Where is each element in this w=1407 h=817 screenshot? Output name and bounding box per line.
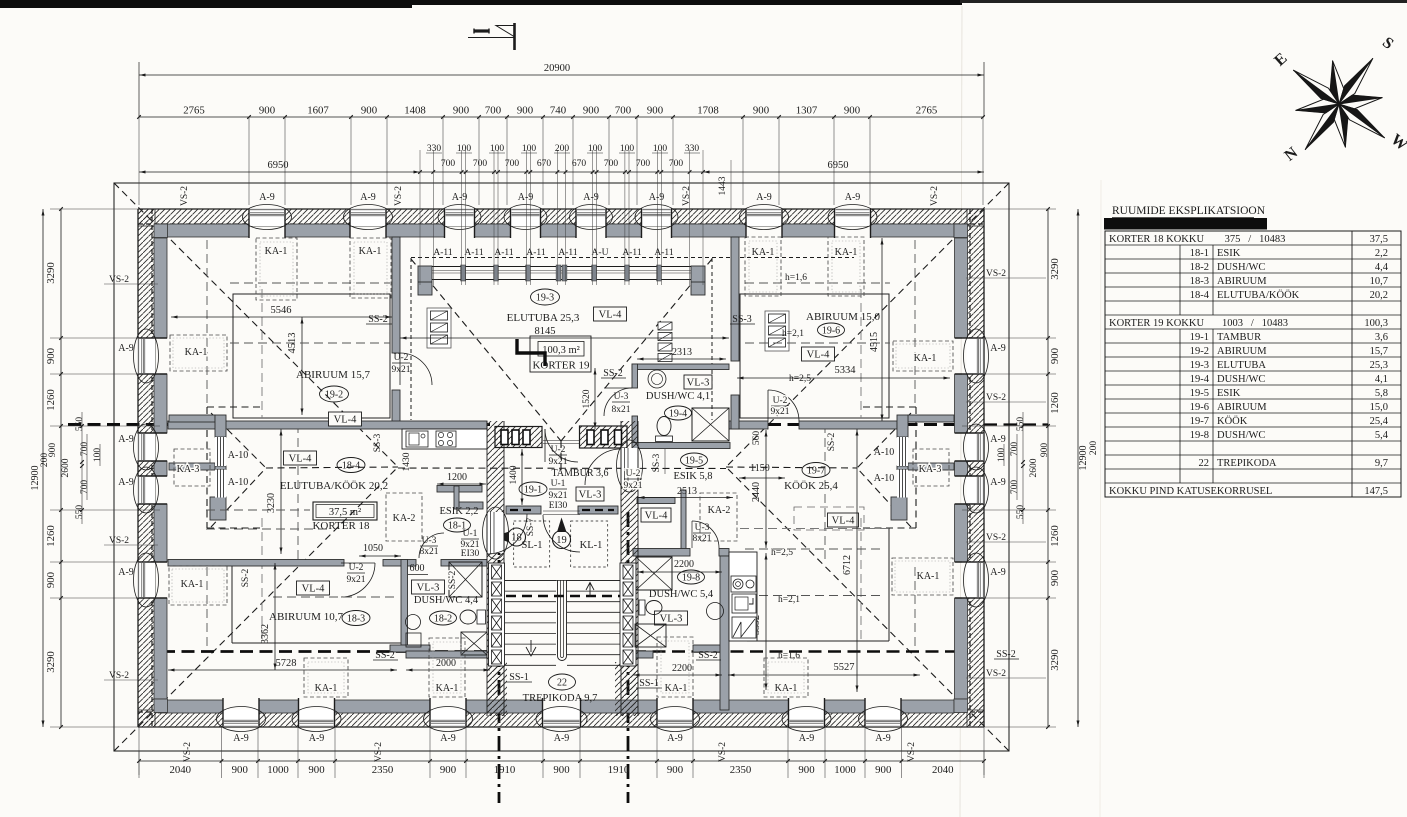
svg-text:700: 700 [636,159,651,169]
svg-text:ESIK: ESIK [1217,388,1241,399]
svg-text:VL-3: VL-3 [687,378,710,389]
svg-text:VS-2: VS-2 [986,269,1006,279]
svg-text:KA-3: KA-3 [919,464,942,475]
svg-text:900: 900 [553,764,569,776]
svg-text:5527: 5527 [834,662,855,673]
svg-text:5,4: 5,4 [1375,430,1389,441]
svg-text:VL-4: VL-4 [302,584,325,595]
svg-text:1910: 1910 [494,764,516,776]
svg-text:SS-2: SS-2 [603,368,622,379]
svg-text:VS-2: VS-2 [394,186,404,206]
svg-text:1400: 1400 [509,465,519,484]
svg-text:U-2: U-2 [551,445,566,455]
svg-text:12900: 12900 [1078,446,1089,471]
svg-text:375 / 10483: 375 / 10483 [1225,234,1286,245]
svg-text:19-4: 19-4 [669,408,687,419]
svg-text:KA-1: KA-1 [359,246,382,257]
svg-text:A-10: A-10 [228,450,249,461]
svg-text:ABIRUUM 15,7: ABIRUUM 15,7 [296,369,370,381]
svg-text:A-11: A-11 [622,248,641,258]
svg-text:3,6: 3,6 [1375,332,1388,343]
svg-text:9x21: 9x21 [771,407,790,417]
svg-text:U-2: U-2 [773,396,788,406]
svg-text:18-1: 18-1 [1190,248,1209,259]
svg-text:A-10: A-10 [874,447,895,458]
svg-text:A-9: A-9 [233,733,249,744]
svg-text:VL-4: VL-4 [807,350,830,361]
svg-text:EI30: EI30 [549,501,568,511]
svg-text:19-7: 19-7 [807,465,825,476]
svg-text:900: 900 [45,348,57,364]
svg-text:A-9: A-9 [518,192,534,203]
svg-text:DUSH/WC 5,4: DUSH/WC 5,4 [649,589,714,600]
svg-text:9,7: 9,7 [1375,458,1388,469]
svg-text:A-9: A-9 [118,567,134,578]
svg-text:9x21: 9x21 [624,481,643,491]
svg-text:200: 200 [1089,441,1099,456]
svg-text:100: 100 [588,144,603,154]
svg-text:DUSH/WC: DUSH/WC [1217,262,1265,273]
svg-text:h=2,5: h=2,5 [789,374,811,384]
svg-text:900: 900 [1040,443,1050,458]
svg-text:670: 670 [572,159,587,169]
svg-text:A-11: A-11 [494,248,513,258]
svg-text:1307: 1307 [796,105,818,117]
svg-text:h=1,6: h=1,6 [785,273,807,283]
svg-text:A-9: A-9 [440,733,456,744]
svg-text:ABIRUUM: ABIRUUM [1217,402,1267,413]
svg-text:A-9: A-9 [309,733,325,744]
svg-text:2313: 2313 [672,347,692,358]
svg-text:900: 900 [875,764,891,776]
svg-text:4,4: 4,4 [1375,262,1389,273]
svg-text:740: 740 [550,105,566,117]
svg-text:9x21: 9x21 [392,365,411,375]
svg-text:6950: 6950 [268,160,289,171]
svg-text:A-9: A-9 [990,343,1006,354]
svg-text:EI30: EI30 [461,549,480,559]
svg-text:U-2: U-2 [626,469,641,479]
svg-text:6950: 6950 [828,160,849,171]
svg-text:4,1: 4,1 [1375,374,1388,385]
svg-text:18-2: 18-2 [434,613,452,624]
svg-text:ELUTUBA/KÖÖK 20,2: ELUTUBA/KÖÖK 20,2 [280,480,388,492]
svg-text:700: 700 [80,480,90,495]
svg-text:1200: 1200 [447,472,467,483]
svg-text:2513: 2513 [677,486,697,497]
svg-text:2600: 2600 [1029,458,1039,477]
svg-text:ESIK 5,8: ESIK 5,8 [673,471,712,482]
svg-text:A-9: A-9 [875,733,891,744]
svg-text:KA-2: KA-2 [708,505,731,516]
svg-text:330: 330 [685,144,700,154]
svg-text:2440: 2440 [751,482,762,502]
svg-text:19-2: 19-2 [325,389,343,400]
svg-text:A-11: A-11 [464,248,483,258]
svg-text:KA-1: KA-1 [917,571,940,582]
svg-text:19-6: 19-6 [1190,402,1209,413]
svg-text:KA-1: KA-1 [315,683,338,694]
svg-text:VS-2: VS-2 [930,186,940,206]
svg-text:550: 550 [75,505,85,520]
svg-text:A-11: A-11 [558,248,577,258]
svg-text:A-11: A-11 [526,248,545,258]
svg-text:100: 100 [997,448,1007,463]
svg-text:U-3: U-3 [695,523,710,533]
svg-text:A-9: A-9 [845,192,861,203]
svg-text:147,5: 147,5 [1364,486,1388,497]
svg-text:100: 100 [522,144,537,154]
svg-text:19-7: 19-7 [1190,416,1209,427]
svg-text:KA-1: KA-1 [181,579,204,590]
svg-text:100: 100 [457,144,472,154]
svg-text:15,7: 15,7 [1370,346,1388,357]
svg-text:A-9: A-9 [667,733,683,744]
svg-text:SS-2: SS-2 [448,571,458,590]
svg-text:SS-1: SS-1 [639,678,658,689]
svg-text:900: 900 [45,572,57,588]
svg-text:900: 900 [361,105,377,117]
svg-text:TAMBUR: TAMBUR [1217,332,1261,343]
svg-text:1260: 1260 [45,389,57,411]
svg-text:SS-3: SS-3 [652,454,662,473]
svg-text:RUUMIDE EKSPLIKATSIOON: RUUMIDE EKSPLIKATSIOON [1112,205,1266,217]
svg-text:3290: 3290 [45,651,57,673]
svg-text:900: 900 [1049,348,1061,364]
svg-text:A-9: A-9 [990,567,1006,578]
svg-text:A-10: A-10 [228,477,249,488]
svg-text:3362: 3362 [260,624,271,644]
svg-text:U-3: U-3 [422,536,437,546]
svg-text:SS-2: SS-2 [241,569,251,588]
svg-text:A-9: A-9 [118,434,134,445]
svg-text:2000: 2000 [436,658,456,669]
svg-text:19-6: 19-6 [822,325,840,336]
svg-text:900: 900 [440,764,456,776]
svg-text:1003 / 10483: 1003 / 10483 [1222,318,1288,329]
svg-text:19-8: 19-8 [1190,430,1209,441]
svg-text:700: 700 [615,105,631,117]
svg-text:700: 700 [80,442,90,457]
svg-text:900: 900 [667,764,683,776]
svg-text:700: 700 [485,105,501,117]
svg-text:KA-1: KA-1 [436,683,459,694]
svg-text:100,3 m²: 100,3 m² [542,345,580,356]
svg-text:2040: 2040 [932,764,954,776]
svg-text:5546: 5546 [271,305,292,316]
svg-text:1000: 1000 [834,764,856,776]
svg-text:KA-3: KA-3 [177,464,200,475]
svg-text:2350: 2350 [730,764,752,776]
svg-text:19-5: 19-5 [685,455,703,466]
svg-text:20900: 20900 [544,63,570,74]
svg-text:KORTER 18 KOKKU: KORTER 18 KOKKU [1109,234,1204,245]
svg-text:A-U: A-U [592,248,609,258]
svg-text:VL-3: VL-3 [417,583,440,594]
svg-text:4515: 4515 [869,332,880,352]
svg-text:1910: 1910 [608,764,630,776]
svg-text:900: 900 [453,105,469,117]
svg-text:VS-2: VS-2 [986,669,1006,679]
svg-text:3290: 3290 [1049,258,1061,280]
svg-text:KA-1: KA-1 [665,683,688,694]
svg-text:100: 100 [653,144,668,154]
svg-text:U-2: U-2 [349,563,364,573]
svg-text:1050: 1050 [363,543,383,554]
svg-text:A-9: A-9 [990,477,1006,488]
svg-text:1607: 1607 [307,105,329,117]
svg-text:2350: 2350 [372,764,394,776]
svg-text:9x21: 9x21 [347,575,366,585]
svg-text:VS-2: VS-2 [109,671,129,681]
svg-text:DUSH/WC 4,1: DUSH/WC 4,1 [646,391,710,402]
svg-text:18-2: 18-2 [1190,262,1209,273]
svg-text:KA-1: KA-1 [185,347,208,358]
svg-text:6712: 6712 [842,555,853,575]
svg-text:15,0: 15,0 [1370,402,1388,413]
svg-text:2,2: 2,2 [1375,248,1388,259]
svg-text:ELUTUBA 25,3: ELUTUBA 25,3 [507,312,580,324]
svg-text:ABIRUUM 10,7: ABIRUUM 10,7 [269,611,343,623]
svg-text:18-3: 18-3 [1190,276,1209,287]
svg-text:ABIRUUM 15,0: ABIRUUM 15,0 [806,311,880,323]
svg-text:2765: 2765 [183,105,205,117]
svg-text:A-9: A-9 [990,434,1006,445]
svg-text:19-1: 19-1 [524,484,542,495]
svg-text:VS-2: VS-2 [718,742,728,762]
svg-text:A-9: A-9 [756,192,772,203]
svg-text:8x21: 8x21 [612,405,631,415]
svg-text:VL-4: VL-4 [334,415,357,426]
svg-text:2200: 2200 [672,663,692,674]
svg-text:8x21: 8x21 [420,547,439,557]
svg-text:A-11: A-11 [433,248,452,258]
svg-text:VS-2: VS-2 [109,536,129,546]
svg-text:KA-1: KA-1 [835,247,858,258]
svg-text:900: 900 [308,764,324,776]
svg-text:DUSH/WC: DUSH/WC [1217,430,1265,441]
svg-text:SS-2: SS-2 [368,314,387,325]
svg-text:2765: 2765 [916,105,938,117]
svg-text:SS-3: SS-3 [373,434,383,453]
svg-text:A-9: A-9 [118,343,134,354]
svg-text:8x21: 8x21 [693,534,712,544]
svg-text:VS-2: VS-2 [682,186,692,206]
svg-text:19-2: 19-2 [1190,346,1209,357]
svg-text:2040: 2040 [169,764,191,776]
svg-text:U-1: U-1 [463,529,478,539]
svg-text:KA-1: KA-1 [914,353,937,364]
svg-text:5,8: 5,8 [1375,388,1388,399]
svg-text:KA-2: KA-2 [393,513,416,524]
svg-text:SS-2: SS-2 [827,433,837,452]
svg-text:KOKKU PIND KATUSEKORRUSEL: KOKKU PIND KATUSEKORRUSEL [1109,486,1272,497]
svg-text:VL-3: VL-3 [579,490,602,501]
svg-text:19-4: 19-4 [1190,374,1210,385]
svg-text:TAMBUR 3,6: TAMBUR 3,6 [552,468,609,479]
svg-text:19-3: 19-3 [1190,360,1209,371]
svg-text:18-4: 18-4 [1190,290,1210,301]
svg-text:900: 900 [844,105,860,117]
svg-text:h=2,5: h=2,5 [771,548,793,558]
svg-text:1408: 1408 [404,105,426,117]
svg-text:700: 700 [1010,442,1020,457]
svg-text:VL-4: VL-4 [289,454,312,465]
svg-text:700: 700 [669,159,684,169]
svg-text:900: 900 [259,105,275,117]
svg-text:5728: 5728 [276,658,297,669]
svg-text:25,4: 25,4 [1370,416,1389,427]
svg-text:900: 900 [232,764,248,776]
svg-text:A-9: A-9 [649,192,665,203]
svg-text:KORTER 18: KORTER 18 [312,520,370,532]
svg-text:ABIRUUM: ABIRUUM [1217,346,1267,357]
svg-text:SS-3: SS-3 [732,314,751,325]
svg-text:9x21: 9x21 [549,457,568,467]
svg-text:VS-2: VS-2 [109,275,129,285]
svg-text:A-10: A-10 [874,473,895,484]
svg-text:1000: 1000 [267,764,289,776]
svg-text:330: 330 [427,144,442,154]
svg-text:VS-2: VS-2 [986,533,1006,543]
svg-text:ESIK 2,2: ESIK 2,2 [439,506,478,517]
svg-text:ESIK: ESIK [1217,248,1241,259]
svg-text:A-9: A-9 [583,192,599,203]
svg-text:SS-2: SS-2 [698,650,717,661]
svg-text:SS-7: SS-7 [526,518,536,537]
svg-text:VS-2: VS-2 [374,742,384,762]
svg-text:1430: 1430 [402,452,412,471]
svg-text:18-3: 18-3 [347,613,365,624]
svg-text:2600: 2600 [61,458,71,477]
svg-text:ELUTUBA: ELUTUBA [1217,360,1266,371]
svg-text:700: 700 [505,159,520,169]
svg-text:VS-2: VS-2 [907,742,917,762]
svg-text:U-1: U-1 [551,479,566,489]
svg-text:KA-1: KA-1 [752,247,775,258]
svg-text:KÖÖK 25,4: KÖÖK 25,4 [784,480,838,492]
svg-text:18-4: 18-4 [342,460,360,471]
svg-text:900: 900 [583,105,599,117]
svg-text:100: 100 [620,144,635,154]
svg-text:8145: 8145 [535,326,556,337]
svg-text:37,5: 37,5 [1370,234,1388,245]
svg-text:100: 100 [490,144,505,154]
svg-text:3290: 3290 [1049,649,1061,671]
svg-text:19-1: 19-1 [1190,332,1209,343]
svg-text:37,5 m²: 37,5 m² [329,507,361,518]
svg-text:12900: 12900 [30,466,41,491]
svg-text:h=1,6: h=1,6 [778,651,800,661]
svg-text:1150: 1150 [750,463,770,474]
svg-text:SS-2: SS-2 [375,650,394,661]
svg-text:h=2,1: h=2,1 [782,329,804,339]
svg-text:900: 900 [1049,570,1061,586]
svg-text:TREPIKODA: TREPIKODA [1217,458,1277,469]
svg-text:ABIRUUM: ABIRUUM [1217,276,1267,287]
svg-text:670: 670 [537,159,552,169]
svg-text:20,2: 20,2 [1370,290,1388,301]
svg-text:1260: 1260 [45,525,57,547]
svg-text:200: 200 [555,144,570,154]
svg-text:A-9: A-9 [118,477,134,488]
svg-text:900: 900 [48,443,58,458]
svg-text:VL-4: VL-4 [599,310,622,321]
svg-text:SS-2: SS-2 [996,649,1015,660]
svg-text:KORTER 19: KORTER 19 [532,360,590,372]
svg-text:U-3: U-3 [614,392,629,402]
svg-text:KÖÖK: KÖÖK [1217,415,1248,427]
svg-text:700: 700 [441,159,456,169]
svg-text:22: 22 [1199,458,1210,469]
svg-text:VL-4: VL-4 [832,516,855,527]
svg-text:600: 600 [410,563,425,574]
svg-text:550: 550 [1016,417,1026,432]
svg-text:U-2: U-2 [394,353,409,363]
svg-text:ELUTUBA/KÖÖK: ELUTUBA/KÖÖK [1217,289,1300,301]
svg-text:560: 560 [752,431,762,446]
svg-text:VS-2: VS-2 [183,742,193,762]
svg-text:700: 700 [1010,480,1020,495]
svg-text:VL-3: VL-3 [660,614,683,625]
svg-text:700: 700 [473,159,488,169]
svg-text:19-3: 19-3 [536,292,554,303]
svg-text:22: 22 [557,677,567,688]
svg-text:2200: 2200 [674,559,694,570]
svg-text:A-9: A-9 [452,192,468,203]
svg-text:550: 550 [1016,505,1026,520]
svg-text:KORTER 19 KOKKU: KORTER 19 KOKKU [1109,318,1204,329]
svg-text:700: 700 [604,159,619,169]
svg-text:900: 900 [517,105,533,117]
svg-text:18: 18 [511,533,522,544]
svg-text:1708: 1708 [697,105,719,117]
svg-text:1520: 1520 [582,389,592,408]
svg-text:h=2,1: h=2,1 [778,595,800,605]
svg-text:VS-2: VS-2 [986,393,1006,403]
svg-text:SS-1: SS-1 [509,672,528,683]
svg-text:3290: 3290 [45,262,57,284]
svg-text:1260: 1260 [1049,525,1061,547]
svg-text:1443: 1443 [718,176,728,195]
svg-text:900: 900 [647,105,663,117]
svg-text:DUSH/WC: DUSH/WC [1217,374,1265,385]
svg-text:9x21: 9x21 [549,491,568,501]
svg-text:A-9: A-9 [360,192,376,203]
svg-text:TREPIKODA 9,7: TREPIKODA 9,7 [523,693,598,704]
svg-text:A-9: A-9 [554,733,570,744]
svg-text:A-9: A-9 [259,192,275,203]
svg-text:900: 900 [753,105,769,117]
svg-text:KL-1: KL-1 [580,540,603,551]
svg-text:900: 900 [798,764,814,776]
svg-text:A-9: A-9 [799,733,815,744]
svg-text:19-5: 19-5 [1190,388,1209,399]
svg-text:1260: 1260 [1049,392,1061,414]
svg-text:5334: 5334 [835,365,857,376]
svg-text:KA-1: KA-1 [775,683,798,694]
svg-text:VL-4: VL-4 [645,511,668,522]
svg-text:550: 550 [75,417,85,432]
svg-text:VS-2: VS-2 [180,186,190,206]
svg-text:100: 100 [93,448,103,463]
svg-text:19-8: 19-8 [682,572,700,583]
svg-text:100,3: 100,3 [1364,318,1388,329]
svg-text:SL-1: SL-1 [522,540,543,551]
svg-text:25,3: 25,3 [1370,360,1388,371]
svg-text:KA-1: KA-1 [265,246,288,257]
svg-text:10,7: 10,7 [1370,276,1388,287]
